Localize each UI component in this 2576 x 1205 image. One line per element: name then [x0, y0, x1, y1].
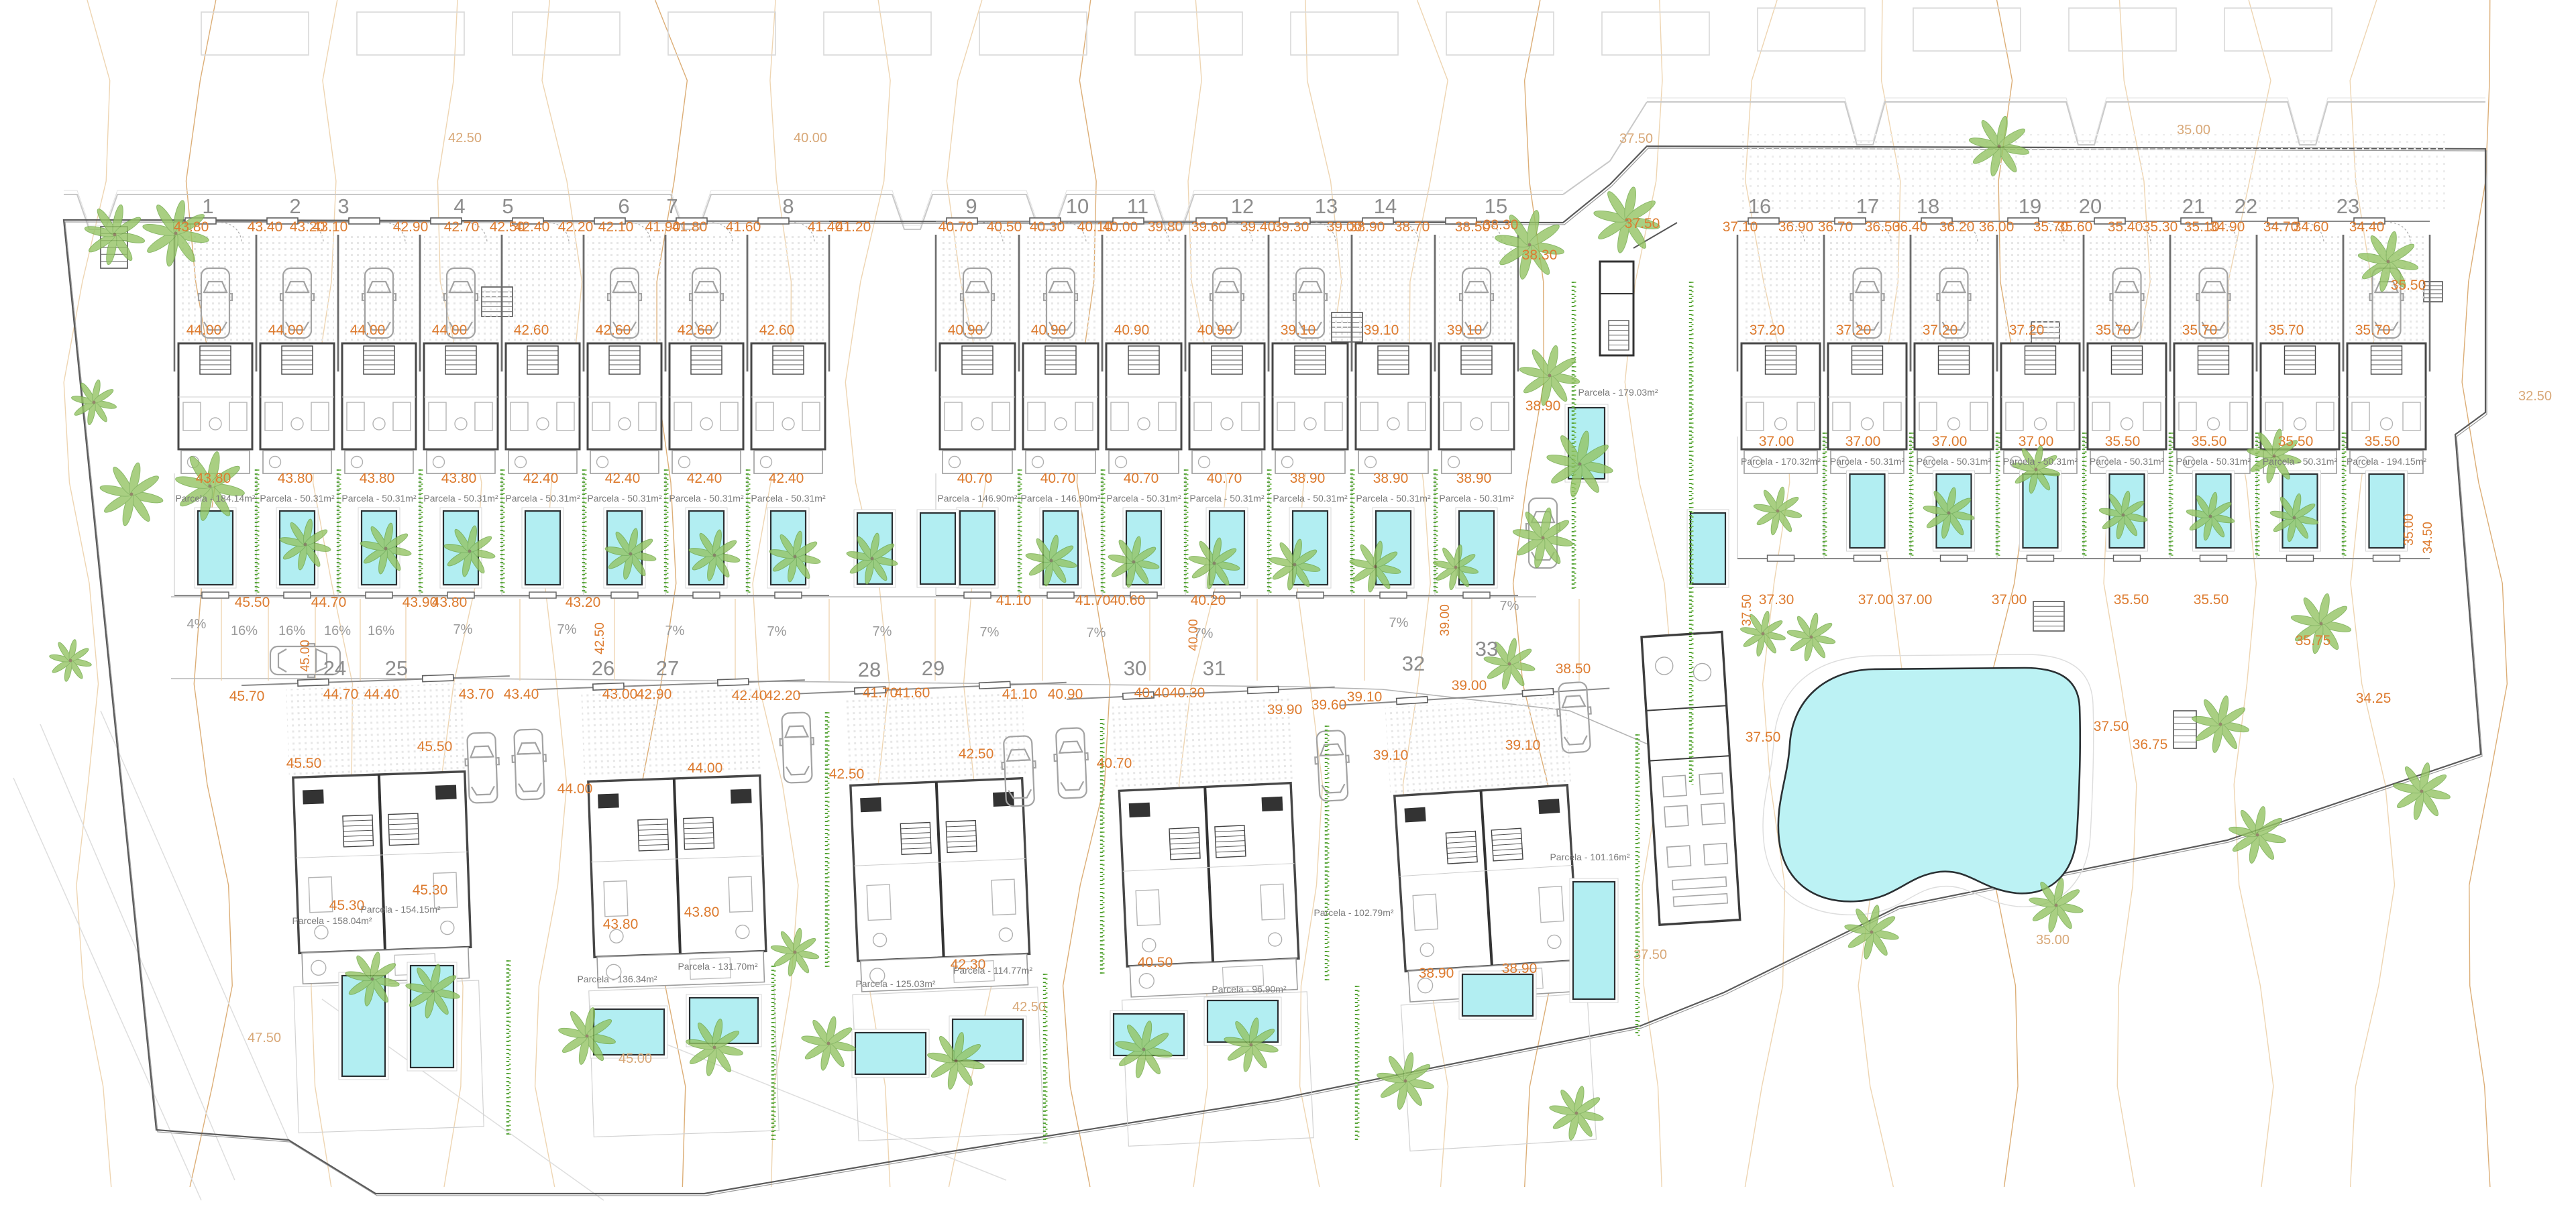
neighbor-building-outline [2069, 8, 2176, 51]
garden-elevation: 38.90 [1456, 471, 1492, 486]
car-mirror [543, 754, 545, 761]
palm-trunk [2387, 260, 2390, 264]
gate-block [1522, 689, 1553, 697]
palm-tree-icon [49, 639, 92, 682]
stairs-icon [2424, 282, 2443, 302]
rear-terrace [1192, 451, 1262, 473]
front-elevation: 41.80 [672, 219, 708, 235]
car-mirror [1526, 524, 1529, 530]
contour-elevation: 47.50 [248, 1031, 281, 1045]
slope-percentage: 7% [1389, 616, 1409, 630]
rear-terrace [1442, 451, 1511, 473]
front-elevation: 40.00 [1103, 219, 1138, 235]
slope-percentage: 7% [665, 624, 685, 638]
front-elevation: 38.50 [1556, 661, 1591, 677]
rear-terrace [263, 451, 331, 473]
car-mirror [513, 756, 515, 762]
communal-elevation: 35.50 [2391, 278, 2426, 293]
garden-elevation: 42.40 [605, 471, 641, 486]
interior-elevation: 40.90 [1197, 323, 1233, 338]
front-elevation: 36.90 [1778, 219, 1814, 235]
parcela-area-label: Parcela - 50.31m² [2090, 456, 2165, 467]
parcela-area-label: Parcela - 50.31m² [2263, 456, 2338, 467]
rotated-elevation: 42.50 [593, 622, 607, 654]
contour-elevation: 35.00 [2036, 933, 2070, 948]
parcela-area-label: Parcela - 50.31m² [669, 493, 744, 504]
front-elevation: 42.70 [444, 219, 480, 235]
parcela-area-label: Parcela - 131.70m² [678, 961, 757, 972]
contour-line [1625, 0, 1673, 1187]
contour-elevation: 40.00 [794, 131, 827, 146]
palm-trunk [629, 553, 633, 556]
plot-number: 20 [2079, 194, 2102, 218]
palm-trunk [1578, 463, 1582, 466]
duplex-villa [537, 677, 820, 1139]
rear-terrace [754, 451, 822, 473]
contour-elevation: 32.50 [2518, 389, 2552, 404]
garden-elevation: 37.00 [2019, 434, 2054, 449]
front-elevation: 40.70 [938, 219, 974, 235]
front-elevation: 42.20 [558, 219, 594, 235]
palm-tree-icon [1786, 612, 1835, 661]
front-elevation: 38.90 [1350, 219, 1385, 235]
plot-number: 31 [1203, 656, 1226, 680]
parcela-area-label: Parcela - 50.31m² [587, 493, 662, 504]
palm-tree-icon [2191, 695, 2249, 753]
gap-elevation: 38.30 [1483, 217, 1519, 233]
pool [1850, 474, 1885, 548]
rear-elevation: 37.00 [1992, 592, 2027, 608]
front-elevation: 41.70 [863, 685, 898, 701]
rear-gate [693, 592, 720, 598]
gate-block [758, 218, 789, 224]
plot-number: 1 [202, 194, 213, 218]
interior-elevation: 40.70 [1097, 756, 1132, 771]
parcela-area-label: Parcela - 50.31m² [2176, 456, 2251, 467]
rear-gate [1854, 555, 1881, 561]
car-icon [464, 732, 500, 803]
palm-trunk [69, 659, 72, 663]
palm-trunk [1998, 145, 2001, 148]
slope-percentage: 16% [324, 624, 351, 638]
palm-trunk [1508, 663, 1511, 666]
interior-elevation: 39.10 [1373, 748, 1409, 763]
palm-trunk [1548, 374, 1552, 378]
car-icon [511, 729, 547, 800]
rear-elevation: 41.10 [996, 593, 1032, 608]
interior-elevation: 44.00 [557, 781, 593, 797]
garden-elevation: 43.80 [278, 471, 313, 486]
contour-elevation: 35.00 [2177, 123, 2210, 137]
plot-number: 7 [666, 194, 678, 218]
front-elevation: 42.20 [765, 688, 801, 703]
interior-elevation: 44.00 [186, 323, 222, 338]
parcela-area-label: Parcela - 184.14m² [175, 493, 255, 504]
front-elevation: 44.70 [323, 687, 359, 702]
palm-trunk [871, 557, 874, 561]
car-windshield [470, 746, 494, 757]
front-elevation: 34.90 [2210, 219, 2245, 235]
car-rear-window [472, 786, 494, 795]
palm-trunk [371, 978, 374, 981]
interior-elevation: 44.00 [432, 323, 468, 338]
front-elevation: 36.20 [1939, 219, 1975, 235]
contour-elevation: 45.00 [619, 1051, 652, 1066]
car-icon [779, 712, 815, 783]
pool [2369, 474, 2404, 548]
car-mirror [780, 739, 783, 746]
palm-trunk [384, 547, 388, 551]
rear-terrace [1275, 451, 1345, 473]
pool [960, 511, 995, 585]
buildings-layer [174, 218, 2430, 1153]
rear-elevation: 37.30 [1759, 592, 1794, 608]
parcela-area-label: Parcela - 114.77m² [953, 965, 1032, 976]
rear-elevation: 43.20 [566, 595, 601, 610]
slope-percentage: 7% [557, 622, 577, 637]
palm-trunk [2035, 468, 2038, 471]
plot-number: 33 [1475, 637, 1498, 661]
communal-elevation: 35.75 [2296, 633, 2331, 648]
slope-percentage: 16% [231, 624, 258, 638]
rear-gate [1297, 592, 1324, 598]
palm-trunk [93, 401, 96, 404]
rear-elevation: 41.70 [1075, 593, 1111, 608]
neighbor-building-outline [1758, 8, 1865, 51]
neighbor-building-outline [2224, 8, 2332, 51]
plot-number: 6 [618, 194, 629, 218]
parcela-area-label: Parcela - 125.03m² [855, 978, 935, 989]
palm-trunk [1762, 632, 1765, 636]
slope-percentage: 7% [453, 622, 473, 637]
rear-elevation: 45.50 [235, 595, 270, 610]
palm-trunk [1142, 1048, 1146, 1051]
plot-number: 18 [1917, 194, 1939, 218]
front-elevation: 41.10 [1002, 687, 1038, 702]
palm-trunk [1575, 1112, 1578, 1115]
garden-elevation: 40.70 [1040, 471, 1076, 486]
parcela-area-label: Parcela - 50.31m² [1917, 456, 1992, 467]
interior-elevation: 45.50 [286, 756, 322, 771]
car-windshield [1320, 744, 1343, 756]
gate-block [423, 675, 453, 682]
garden-elevation: 35.50 [2278, 434, 2314, 449]
parcela-area-label: Parcela - 50.31m² [1830, 456, 1905, 467]
plot-number: 21 [2182, 194, 2205, 218]
palm-trunk [2122, 514, 2125, 517]
club-house [1642, 632, 1740, 925]
rear-gate [2114, 555, 2141, 561]
car-rear-window [519, 783, 541, 791]
front-elevation: 38.70 [1395, 219, 1430, 235]
interior-elevation: 37.20 [1750, 323, 1785, 338]
rear-gate [1047, 592, 1074, 598]
palm-trunk [1528, 243, 1532, 247]
palm-trunk [1947, 512, 1951, 515]
interior-elevation: 42.60 [759, 323, 795, 338]
entry-wall [1262, 797, 1283, 811]
gate-block [1397, 697, 1428, 705]
interior-elevation: 40.90 [948, 323, 983, 338]
gate-block [1248, 686, 1279, 693]
interior-elevation: 42.60 [596, 323, 631, 338]
contour-line [845, 0, 890, 1187]
lagoon-pool [1778, 668, 2080, 901]
rear-gate [775, 592, 802, 598]
car-icon [1053, 728, 1089, 799]
pool [525, 511, 560, 585]
palm-trunk [794, 951, 797, 954]
contour-line [64, 0, 111, 1187]
car-rear-window [278, 649, 286, 672]
plot-number: 12 [1231, 194, 1254, 218]
parcela-area-label: Parcela - 50.31m² [260, 493, 335, 504]
front-elevation: 40.40 [1134, 685, 1170, 701]
parcela-area-label: Parcela - 50.31m² [1106, 493, 1181, 504]
rear-terrace [1026, 451, 1095, 473]
terrain-line [101, 711, 288, 1140]
palm-trunk [1810, 636, 1813, 639]
contour-elevation: 37.50 [1619, 131, 1653, 146]
gym-outline [1642, 632, 1740, 925]
entry-wall [598, 794, 619, 808]
plot-number: 30 [1124, 656, 1146, 680]
car-icon [1313, 730, 1350, 801]
interior-elevation: 44.00 [268, 323, 304, 338]
contour-elevation: 42.50 [448, 131, 482, 146]
plot-number: 25 [385, 656, 408, 680]
rear-elevation: 43.80 [432, 595, 468, 610]
rear-elevation: 37.00 [1897, 592, 1933, 608]
driveway-paving [1385, 697, 1571, 794]
neighbor-building-outline [1602, 12, 1709, 55]
parcela-area-label: Parcela - 146.90m² [937, 493, 1017, 504]
plot-number: 10 [1066, 194, 1089, 218]
pool [1462, 974, 1533, 1016]
front-elevation: 41.60 [895, 685, 930, 701]
interior-elevation: 40.90 [1114, 323, 1150, 338]
terrace-elevation: 45.30 [329, 898, 365, 913]
entry-wall [731, 789, 751, 803]
entry-wall [1129, 803, 1150, 817]
interior-elevation: 42.50 [829, 766, 865, 782]
palm-trunk [1050, 559, 1053, 563]
front-elevation: 43.40 [248, 219, 283, 235]
palm-trunk [1776, 510, 1780, 513]
front-elevation: 39.60 [1191, 219, 1227, 235]
palm-trunk [1250, 1043, 1253, 1047]
palm-trunk [1870, 931, 1874, 934]
car-body [1316, 730, 1348, 801]
parcela-area-label: Parcela - 50.31m² [1356, 493, 1431, 504]
plot-number: 19 [2019, 194, 2041, 218]
palm-trunk [794, 555, 797, 559]
slope-percentage: 7% [1500, 599, 1519, 614]
car-line [1007, 760, 1030, 760]
parcela-area-label: Parcela - 170.32m² [1741, 456, 1821, 467]
front-elevation: 40.50 [987, 219, 1022, 235]
interior-elevation: 40.90 [1031, 323, 1067, 338]
gate-block [718, 679, 749, 686]
car-windshield [517, 742, 541, 754]
plot-number: 26 [592, 656, 614, 680]
pool [594, 1009, 664, 1055]
entry-wall [1539, 799, 1560, 814]
car-body [1056, 728, 1087, 799]
front-elevation: 34.40 [2349, 219, 2385, 235]
rear-terrace [508, 451, 577, 473]
terrace-elevation: 38.90 [1419, 966, 1454, 981]
contour-elevation: 42.50 [1012, 1000, 1046, 1015]
parcela-area-label: Parcela - 194.15m² [2347, 456, 2426, 467]
pool [1459, 511, 1494, 585]
neighbor-building-outline [1913, 8, 2021, 51]
entry-wall [303, 790, 324, 804]
pool [2023, 474, 2058, 548]
garden-elevation: 40.70 [957, 471, 993, 486]
car-body [514, 729, 545, 799]
front-elevation: 43.70 [459, 687, 494, 702]
interior-elevation: 35.70 [2182, 323, 2218, 338]
neighbor-building-outline [979, 12, 1087, 55]
front-elevation: 42.40 [515, 219, 550, 235]
parcela-area-label: Parcela - 154.15m² [360, 904, 440, 915]
communal-elevation: 36.75 [2133, 737, 2168, 752]
front-elevation: 36.40 [1892, 219, 1928, 235]
front-elevation: 42.90 [637, 687, 672, 702]
front-elevation: 41.60 [726, 219, 761, 235]
rear-elevation: 35.50 [2194, 592, 2229, 608]
gap-elevation: 37.50 [1625, 216, 1660, 231]
palm-trunk [431, 990, 435, 993]
car-mirror [1032, 761, 1035, 768]
palm-trunk [2320, 622, 2323, 626]
parcela-area-label: Parcela - 50.31m² [423, 493, 498, 504]
garden-elevation: 42.40 [769, 471, 804, 486]
garden-elevation: 43.80 [360, 471, 395, 486]
front-elevation: 40.30 [1030, 219, 1065, 235]
palm-tree-icon [1376, 1051, 1434, 1110]
slope-percentage: 7% [1087, 626, 1106, 640]
stairs-outline [2424, 282, 2443, 302]
car-mirror [1085, 753, 1087, 760]
plot-number: 8 [782, 194, 794, 218]
communal-elevation: 37.50 [1746, 730, 1781, 745]
plot-number: 28 [858, 658, 881, 681]
palm-tree-icon [2392, 762, 2451, 820]
palm-trunk [1293, 563, 1297, 567]
car-body [782, 712, 812, 783]
palm-trunk [1132, 561, 1136, 564]
parcela-area-label: Parcela - 50.31m² [1439, 493, 1514, 504]
plot-number: 29 [922, 656, 945, 680]
parcela-area-label: Parcela - 102.79m² [1313, 907, 1393, 918]
car-line [1320, 754, 1343, 756]
car-rear-window [786, 766, 809, 774]
palm-tree-icon [99, 462, 164, 526]
plot-number: 17 [1856, 194, 1879, 218]
rear-gate [1941, 555, 1968, 561]
rear-gate [529, 592, 556, 598]
rotated-elevation: 45.00 [299, 640, 313, 672]
palm-tree-icon [1519, 345, 1580, 406]
garden-elevation: 37.00 [1845, 434, 1881, 449]
rear-elevation: 35.50 [2114, 592, 2149, 608]
plot-number: 27 [656, 656, 679, 680]
car-line [1059, 752, 1082, 752]
garden-elevation: 40.70 [1124, 471, 1159, 486]
interior-elevation: 42.50 [959, 746, 994, 762]
palm-trunk [586, 1035, 589, 1038]
interior-elevation: 35.70 [2269, 323, 2304, 338]
parcela-area-label: Parcela - 50.31m² [1273, 493, 1348, 504]
rear-gate [2027, 555, 2054, 561]
interior-elevation: 37.20 [2009, 323, 2045, 338]
front-elevation: 43.80 [174, 219, 209, 235]
pool [855, 1033, 926, 1074]
pool [920, 513, 955, 584]
plot-number: 9 [965, 194, 977, 218]
gap-elevation: 38.30 [1522, 247, 1558, 263]
terrace-elevation: 45.30 [413, 882, 448, 898]
palm-trunk [1213, 562, 1216, 565]
palm-trunk [1374, 565, 1377, 569]
rear-terrace [1358, 451, 1428, 473]
front-elevation: 40.30 [1170, 685, 1205, 701]
front-elevation: 36.00 [1979, 219, 2015, 235]
car-rear-window [1322, 784, 1345, 793]
rear-terrace [943, 451, 1012, 473]
rotated-elevation: 39.00 [1438, 604, 1452, 636]
plot-number: 23 [2337, 194, 2359, 218]
terrace-elevation: 38.90 [1502, 961, 1538, 976]
parcela-area-label: Parcela - 136.34m² [577, 974, 657, 984]
front-elevation: 39.00 [1452, 678, 1487, 693]
rear-gate [202, 592, 229, 598]
palm-trunk [113, 233, 117, 237]
rear-gate [1380, 592, 1407, 598]
front-elevation: 43.00 [602, 687, 638, 702]
rear-gate [1768, 555, 1794, 561]
plot-number: 3 [337, 194, 349, 218]
garden-elevation: 43.80 [441, 471, 477, 486]
palm-trunk [2293, 516, 2296, 520]
front-elevation: 37.10 [1723, 219, 1758, 235]
slope-percentage: 16% [278, 624, 305, 638]
interior-elevation: 44.00 [350, 323, 386, 338]
plot-number: 22 [2235, 194, 2257, 218]
front-fence [241, 676, 510, 685]
parcela-area-label: Parcela - 50.31m² [751, 493, 826, 504]
terrace-elevation: 43.80 [684, 905, 720, 920]
garden-elevation: 38.90 [1290, 471, 1326, 486]
parcela-area-label: Parcela - 50.31m² [2003, 456, 2078, 467]
rear-gate [2200, 555, 2227, 561]
interior-elevation: 39.10 [1505, 738, 1541, 753]
palm-trunk [1404, 1080, 1407, 1083]
rear-gate [2287, 555, 2314, 561]
front-elevation: 43.40 [504, 687, 539, 702]
rear-terrace [345, 451, 413, 473]
front-elevation: 39.10 [1347, 689, 1383, 705]
rear-elevation: 40.60 [1110, 593, 1146, 608]
front-elevation: 42.10 [598, 219, 634, 235]
neighbor-building-outline [668, 12, 775, 55]
garden-elevation: 42.40 [523, 471, 559, 486]
rear-gate [964, 592, 991, 598]
neighbor-building-outline [824, 12, 931, 55]
palm-tree-icon [801, 1016, 857, 1072]
